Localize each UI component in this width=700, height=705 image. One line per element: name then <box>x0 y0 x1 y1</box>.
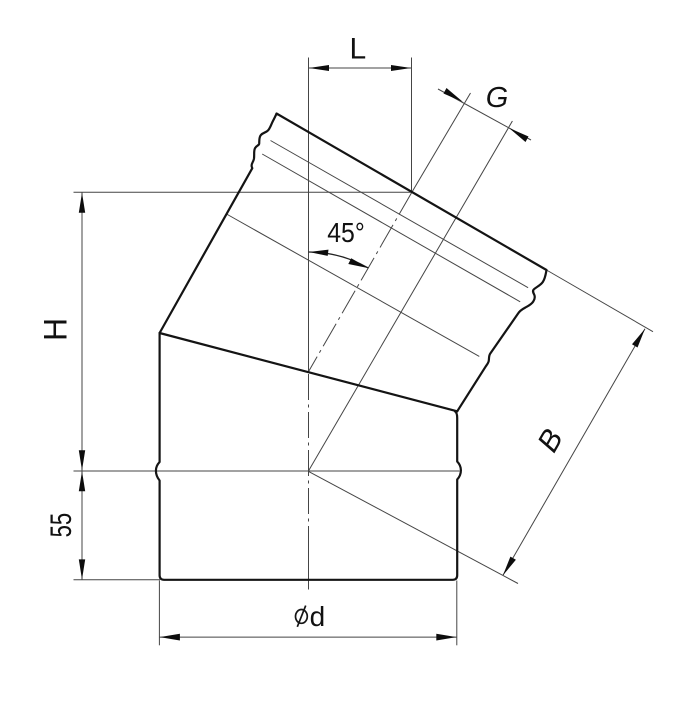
svg-text:L: L <box>349 33 366 66</box>
svg-text:d: d <box>310 601 326 632</box>
svg-text:G: G <box>486 82 509 114</box>
svg-text:H: H <box>37 318 73 341</box>
svg-text:45°: 45° <box>327 217 365 248</box>
svg-text:55: 55 <box>45 513 78 538</box>
